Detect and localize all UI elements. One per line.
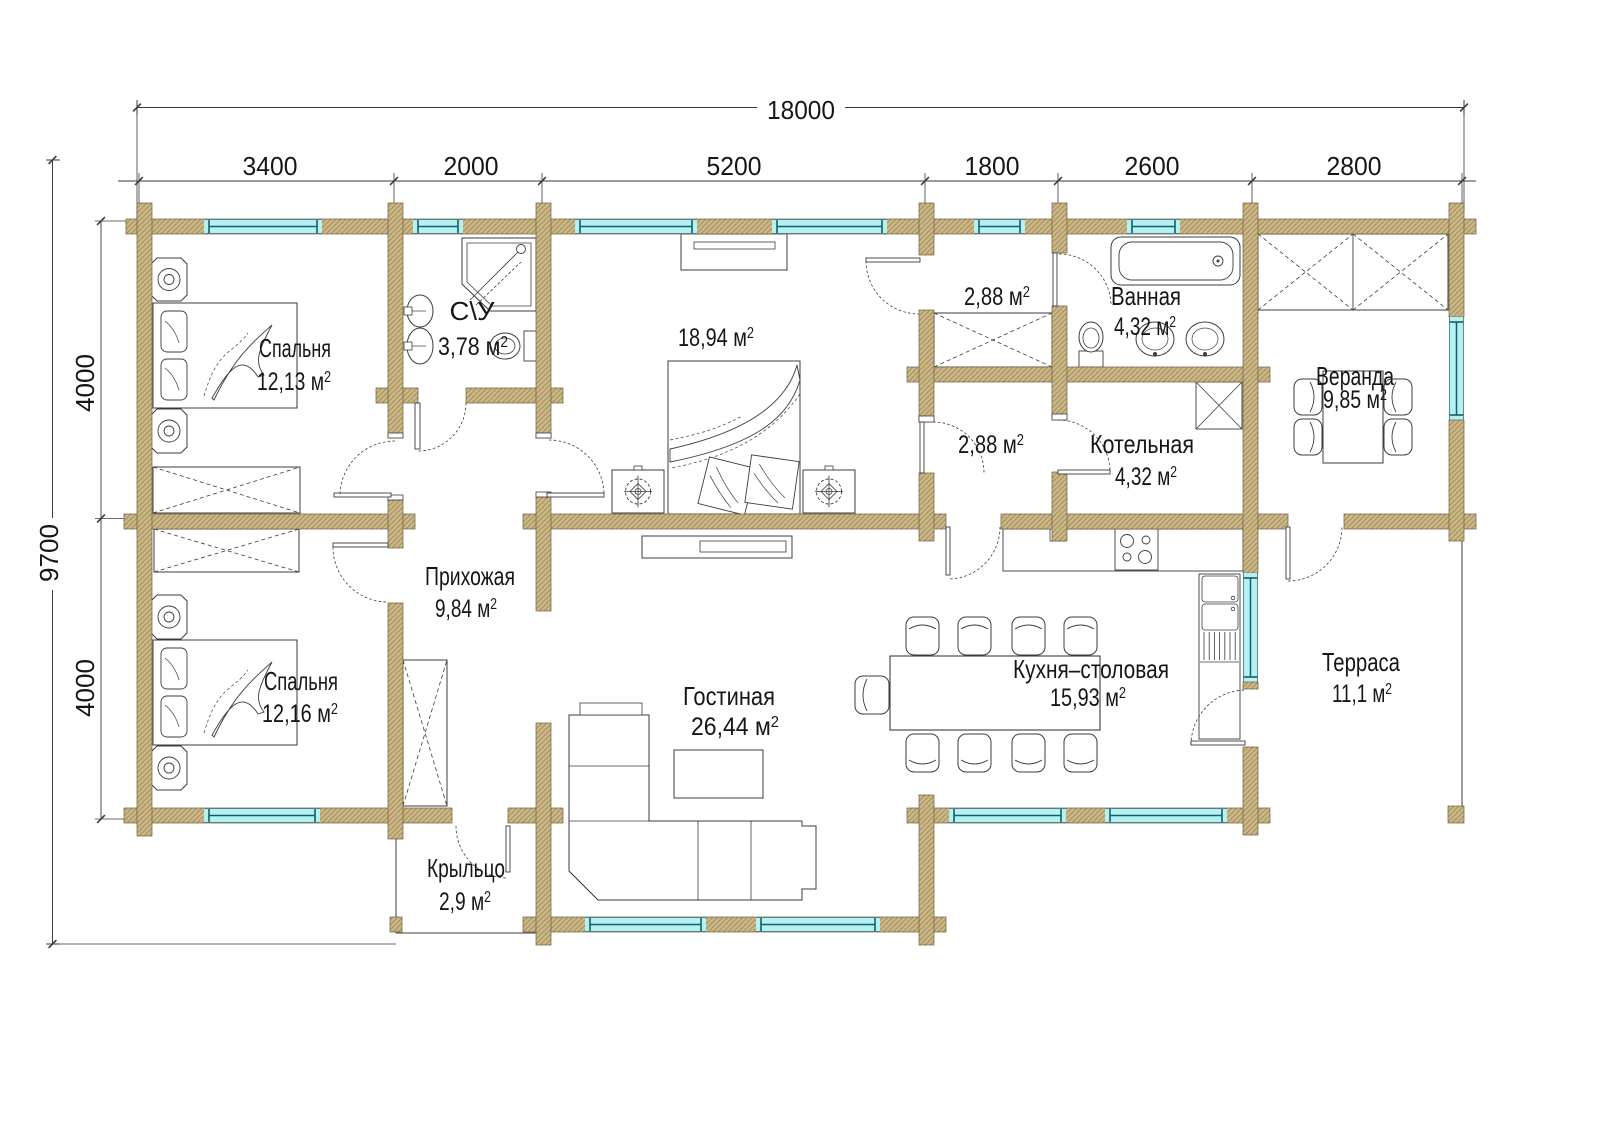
svg-text:1800: 1800 [965, 151, 1020, 181]
svg-text:5200: 5200 [707, 151, 762, 181]
svg-text:4,32 м2: 4,32 м2 [1115, 463, 1177, 491]
svg-text:26,44 м2: 26,44 м2 [691, 713, 779, 741]
svg-text:15,93 м2: 15,93 м2 [1050, 684, 1126, 712]
svg-text:18000: 18000 [767, 95, 835, 125]
svg-text:2,88 м2: 2,88 м2 [958, 431, 1024, 459]
svg-text:4,32 м2: 4,32 м2 [1114, 313, 1176, 341]
svg-text:9700: 9700 [34, 524, 64, 582]
svg-text:Кухня–столовая: Кухня–столовая [1013, 654, 1169, 684]
svg-text:4000: 4000 [70, 659, 100, 717]
svg-text:3,78 м2: 3,78 м2 [438, 333, 508, 361]
svg-text:Котельная: Котельная [1090, 429, 1194, 459]
svg-text:11,1 м2: 11,1 м2 [1332, 680, 1392, 708]
svg-text:Прихожая: Прихожая [425, 561, 515, 591]
svg-text:18,94 м2: 18,94 м2 [678, 324, 754, 352]
svg-text:2000: 2000 [444, 151, 499, 181]
svg-text:Крыльцо: Крыльцо [427, 853, 505, 883]
svg-text:2,88 м2: 2,88 м2 [964, 283, 1030, 311]
svg-text:4000: 4000 [70, 354, 100, 412]
svg-text:2800: 2800 [1327, 151, 1382, 181]
svg-text:2600: 2600 [1125, 151, 1180, 181]
svg-text:Спальня: Спальня [259, 333, 331, 363]
svg-text:12,13 м2: 12,13 м2 [257, 368, 331, 396]
svg-text:Гостиная: Гостиная [683, 681, 775, 711]
svg-text:С\У: С\У [450, 296, 495, 326]
svg-text:Терраса: Терраса [1322, 647, 1400, 677]
svg-text:9,84 м2: 9,84 м2 [435, 595, 497, 623]
svg-text:12,16 м2: 12,16 м2 [262, 700, 338, 728]
svg-text:Спальня: Спальня [264, 666, 338, 696]
svg-text:Ванная: Ванная [1111, 281, 1181, 311]
svg-text:2,9 м2: 2,9 м2 [439, 888, 491, 916]
svg-text:3400: 3400 [243, 151, 298, 181]
svg-text:9,85 м2: 9,85 м2 [1323, 386, 1387, 414]
